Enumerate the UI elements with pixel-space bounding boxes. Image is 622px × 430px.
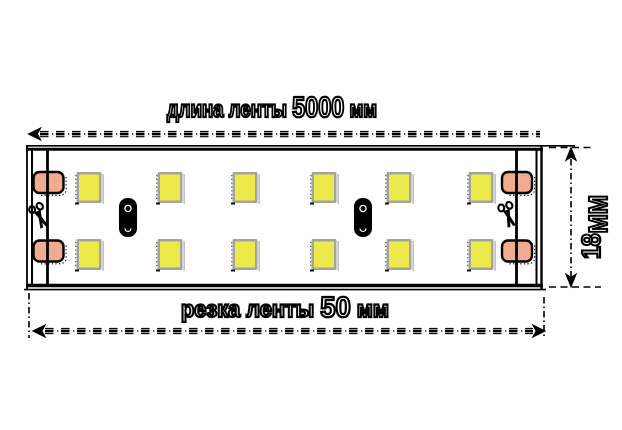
svg-text:длина ленты 5000 мм: длина ленты 5000 мм [167,92,377,124]
svg-text:резка ленты 50 мм: резка ленты 50 мм [181,292,389,324]
